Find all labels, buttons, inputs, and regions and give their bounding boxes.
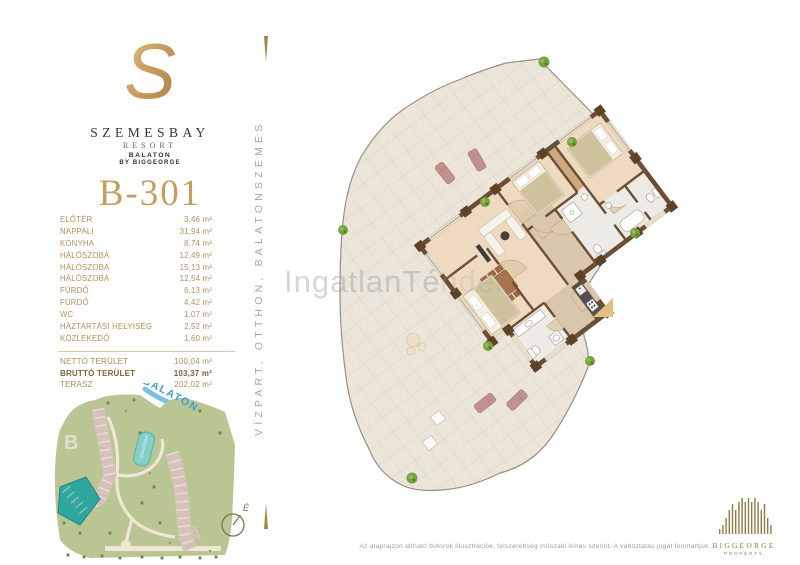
disclaimer: Az alaprajzon látható bútorok illusztrác… <box>320 543 750 550</box>
total-area: 100,04 m² <box>174 356 212 368</box>
watermark: IngatlanTénder <box>284 264 507 300</box>
compass-north-label: É <box>243 503 250 513</box>
room-row: KÖZLEKEDŐ1,60 m² <box>60 333 212 345</box>
room-area: 1,60 m² <box>184 333 212 345</box>
room-row: ELŐTÉR3,46 m² <box>60 214 212 226</box>
building-a-label: A <box>188 524 202 545</box>
total-label: NETTÓ TERÜLET <box>60 356 128 368</box>
resort-type: RESORT <box>55 141 245 150</box>
room-row: WC1,07 m² <box>60 309 212 321</box>
room-row: HÁLÓSZOBA12,49 m² <box>60 250 212 262</box>
room-label: FÜRDŐ <box>60 297 89 309</box>
compass-needle <box>233 515 241 525</box>
total-row: NETTÓ TERÜLET100,04 m² <box>60 356 212 368</box>
unit-number: B-301 <box>55 172 245 215</box>
room-row: HÁLÓSZOBA15,13 m² <box>60 262 212 274</box>
total-area: 103,37 m² <box>174 368 212 380</box>
building-b-label: B <box>64 432 78 454</box>
resort-logo: S <box>112 28 188 120</box>
room-label: WC <box>60 309 73 321</box>
compass: É <box>220 498 265 543</box>
room-label: ELŐTÉR <box>60 214 92 226</box>
room-label: HÁLÓSZOBA <box>60 250 109 262</box>
developer-name: BIGGEORGE <box>700 541 788 550</box>
room-area: 31,94 m² <box>180 226 212 238</box>
room-row: FÜRDŐ4,42 m² <box>60 297 212 309</box>
room-area: 3,46 m² <box>184 214 212 226</box>
room-label: HÁLÓSZOBA <box>60 262 109 274</box>
room-row: NAPPALI31,94 m² <box>60 226 212 238</box>
logo-s-glyph: S <box>124 28 176 115</box>
room-label: KÖZLEKEDŐ <box>60 333 109 345</box>
room-label: KONYHA <box>60 238 94 250</box>
room-label: FÜRDŐ <box>60 285 89 297</box>
room-area: 15,13 m² <box>180 262 212 274</box>
site-area <box>55 395 235 558</box>
brochure-page: S SZEMESBAY RESORT BALATON BY BIGGEORGE … <box>0 0 800 565</box>
developer-logo: BIGGEORGE PROPERTY <box>700 494 788 556</box>
room-label: HÁLÓSZOBA <box>60 273 109 285</box>
room-row: FÜRDŐ6,13 m² <box>60 285 212 297</box>
turnaround <box>121 540 131 550</box>
room-area: 12,49 m² <box>180 250 212 262</box>
room-area: 4,42 m² <box>184 297 212 309</box>
total-label: BRUTTÓ TERÜLET <box>60 368 135 380</box>
ornament-top-icon <box>263 36 269 62</box>
watermark-text: IngatlanTé <box>284 264 441 299</box>
developer-logo-icon <box>714 494 774 534</box>
resort-name: SZEMESBAY <box>55 125 245 141</box>
total-row-gross: BRUTTÓ TERÜLET103,37 m² <box>60 368 212 380</box>
room-area: 6,13 m² <box>184 285 212 297</box>
resort-location: BALATON <box>55 152 245 159</box>
room-area: 12,54 m² <box>180 273 212 285</box>
room-area: 2,52 m² <box>184 321 212 333</box>
room-area: 8,74 m² <box>184 238 212 250</box>
vertical-tagline: VÍZPART, OTTHON, BALATONSZEMES <box>253 72 279 484</box>
room-label: HÁZTARTÁSI HELYISÉG <box>60 321 152 333</box>
room-label: NAPPALI <box>60 226 94 238</box>
room-list: ELŐTÉR3,46 m² NAPPALI31,94 m² KONYHA8,74… <box>60 214 212 345</box>
resort-developer: BY BIGGEORGE <box>55 160 245 166</box>
developer-sub: PROPERTY <box>700 551 788 556</box>
room-row: HÁZTARTÁSI HELYISÉG2,52 m² <box>60 321 212 333</box>
watermark-text-faded: nder <box>441 264 507 299</box>
room-row: KONYHA8,74 m² <box>60 238 212 250</box>
room-row: HÁLÓSZOBA12,54 m² <box>60 273 212 285</box>
totals-divider <box>58 351 235 352</box>
room-area: 1,07 m² <box>184 309 212 321</box>
site-map: MEDENCE B A BALATON <box>50 383 245 565</box>
ornament-bottom-icon <box>263 503 269 529</box>
